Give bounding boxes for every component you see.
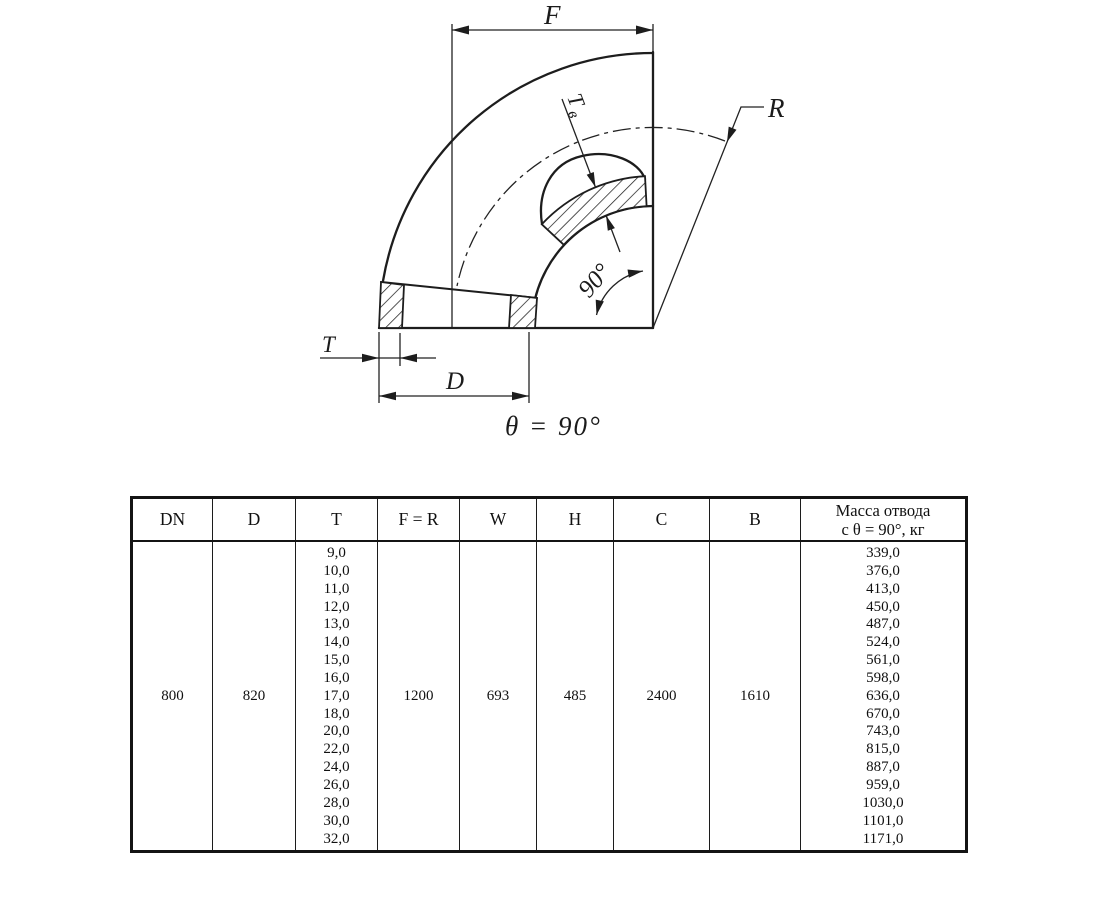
lower-end-left-wall-hatch xyxy=(379,282,404,328)
lower-end-right-wall-hatch xyxy=(509,295,537,328)
angle-90-label: 90° xyxy=(573,259,616,303)
col-header-h: H xyxy=(537,498,614,542)
cell-dn: 800 xyxy=(132,541,213,852)
dimension-table-wrap: DN D T F = R W H C B Масса отвода с θ = … xyxy=(130,496,968,853)
arrowhead-d-right xyxy=(512,392,529,400)
arrowhead-f-right xyxy=(636,26,653,35)
cell-fr: 1200 xyxy=(378,541,460,852)
dim-label-r: R xyxy=(767,93,785,123)
col-header-mass: Масса отвода с θ = 90°, кг xyxy=(801,498,967,542)
elbow-technical-drawing: F R T D Т в 90° θ = 90° xyxy=(0,0,1100,480)
arrowhead-angle-upper xyxy=(628,270,644,278)
col-header-dn: DN xyxy=(132,498,213,542)
arrowhead-angle-lower xyxy=(596,300,604,315)
mass-header-line1: Масса отвода xyxy=(801,501,965,520)
cell-h: 485 xyxy=(537,541,614,852)
header-row: DN D T F = R W H C B Масса отвода с θ = … xyxy=(132,498,967,542)
dimensions-table: DN D T F = R W H C B Масса отвода с θ = … xyxy=(130,496,968,853)
cell-c: 2400 xyxy=(614,541,710,852)
col-header-fr: F = R xyxy=(378,498,460,542)
cell-d: 820 xyxy=(213,541,296,852)
scanned-spec-page: F R T D Т в 90° θ = 90° DN D T F = R xyxy=(0,0,1100,900)
col-header-t: T xyxy=(296,498,378,542)
arrowhead-t-left xyxy=(362,354,379,362)
arrowhead-f-left xyxy=(452,26,469,35)
dimension-arrowheads xyxy=(362,26,737,401)
arrowhead-r xyxy=(727,127,737,142)
col-header-d: D xyxy=(213,498,296,542)
data-row: 800 820 9,0 10,0 11,0 12,0 13,0 14,0 15,… xyxy=(132,541,967,852)
dim-label-d: D xyxy=(445,368,464,395)
arrowhead-tv-upper xyxy=(587,172,596,187)
cell-w: 693 xyxy=(460,541,537,852)
arrowhead-t-right xyxy=(400,354,417,362)
cell-b: 1610 xyxy=(710,541,801,852)
dim-label-t: T xyxy=(322,332,337,357)
col-header-w: W xyxy=(460,498,537,542)
wall-sections xyxy=(379,176,647,328)
cell-mass-values: 339,0 376,0 413,0 450,0 487,0 524,0 561,… xyxy=(801,541,967,852)
elbow-outer-arc xyxy=(383,53,653,281)
arrowhead-tv-lower xyxy=(606,215,615,230)
col-header-c: C xyxy=(614,498,710,542)
mass-header-line2: с θ = 90°, кг xyxy=(801,520,965,539)
upper-end-wall-hatch xyxy=(542,176,647,245)
cell-t-values: 9,0 10,0 11,0 12,0 13,0 14,0 15,0 16,0 1… xyxy=(296,541,378,852)
dim-label-f: F xyxy=(543,0,561,30)
col-header-b: B xyxy=(710,498,801,542)
theta-caption: θ = 90° xyxy=(505,411,602,441)
arrowhead-d-left xyxy=(379,392,396,400)
